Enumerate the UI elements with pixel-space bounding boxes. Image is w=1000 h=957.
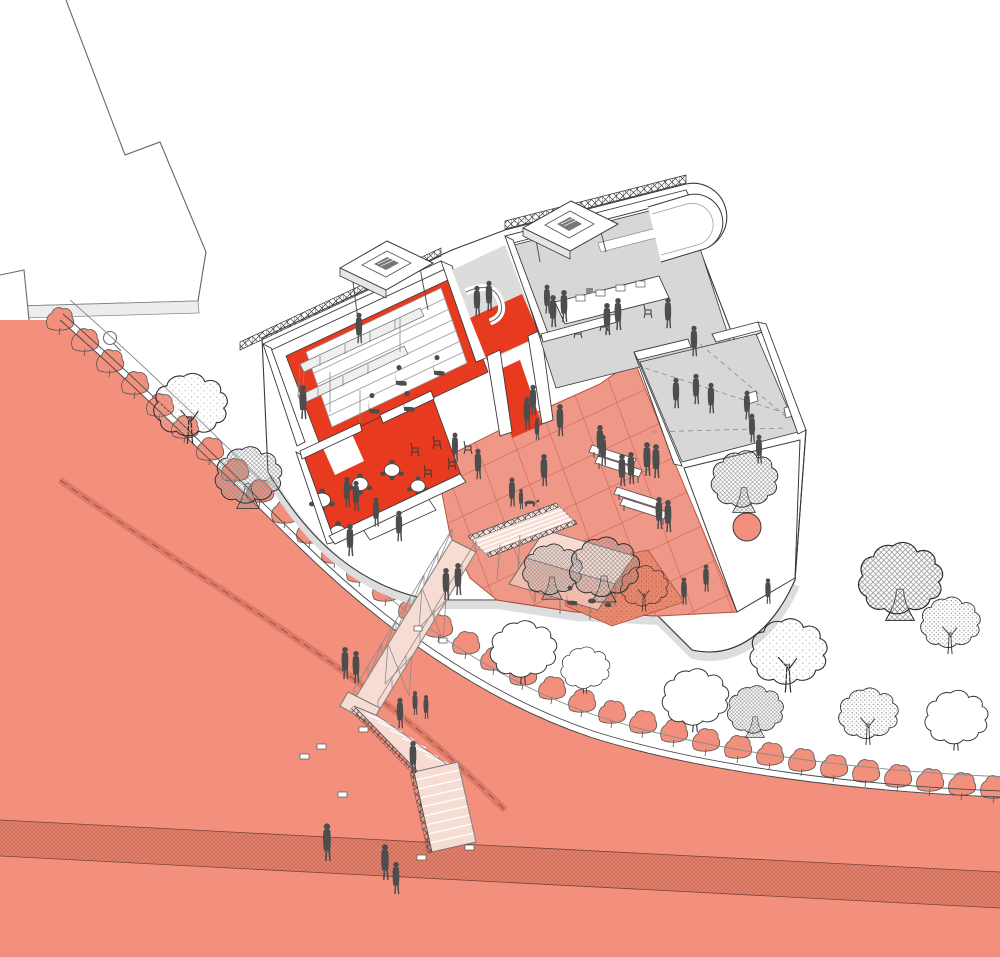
cat-2 (605, 603, 612, 607)
tree-grove-hatch-2 (727, 686, 783, 738)
tree-path-outline-2 (561, 647, 610, 694)
site-illustration (0, 0, 1000, 957)
cat-1 (588, 599, 596, 604)
tree-planter (733, 513, 761, 541)
manhole-detail (104, 332, 117, 345)
tree-grove-dots-1 (921, 597, 981, 654)
tree-path-outline-1 (490, 621, 557, 685)
axonometric-drawing (0, 0, 1000, 957)
tree-grove-outline-2 (925, 690, 988, 750)
tree-grove-dots-2 (839, 688, 899, 745)
existing-building (0, 0, 206, 351)
